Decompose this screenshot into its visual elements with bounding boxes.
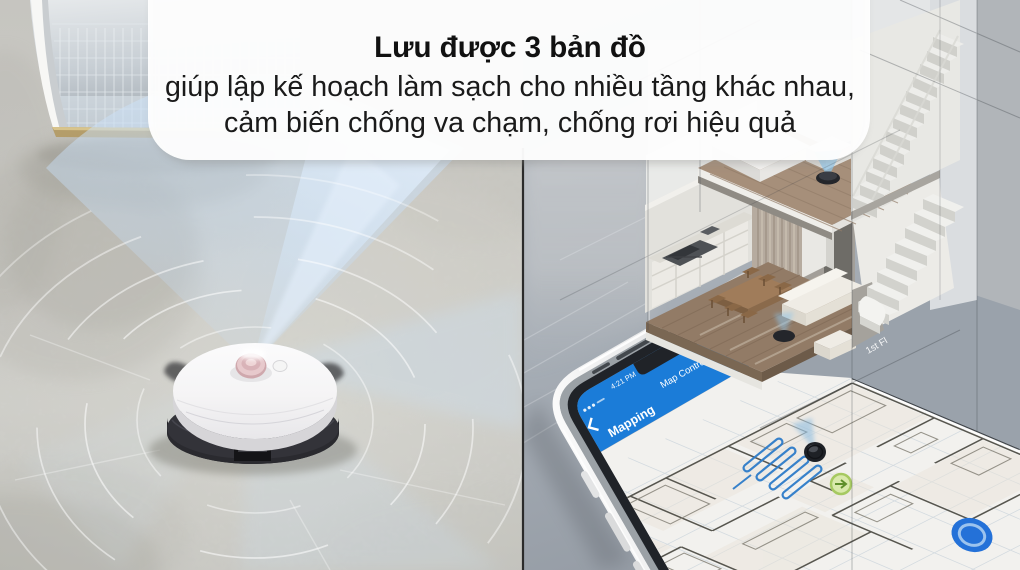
svg-text:giúp lập kế hoạch làm sạch cho: giúp lập kế hoạch làm sạch cho nhiều tần… — [165, 71, 855, 103]
svg-text:cảm biến chống va chạm, chống: cảm biến chống va chạm, chống rơi hiệu q… — [224, 107, 796, 139]
svg-text:Lưu được 3 bản đồ: Lưu được 3 bản đồ — [374, 31, 646, 64]
